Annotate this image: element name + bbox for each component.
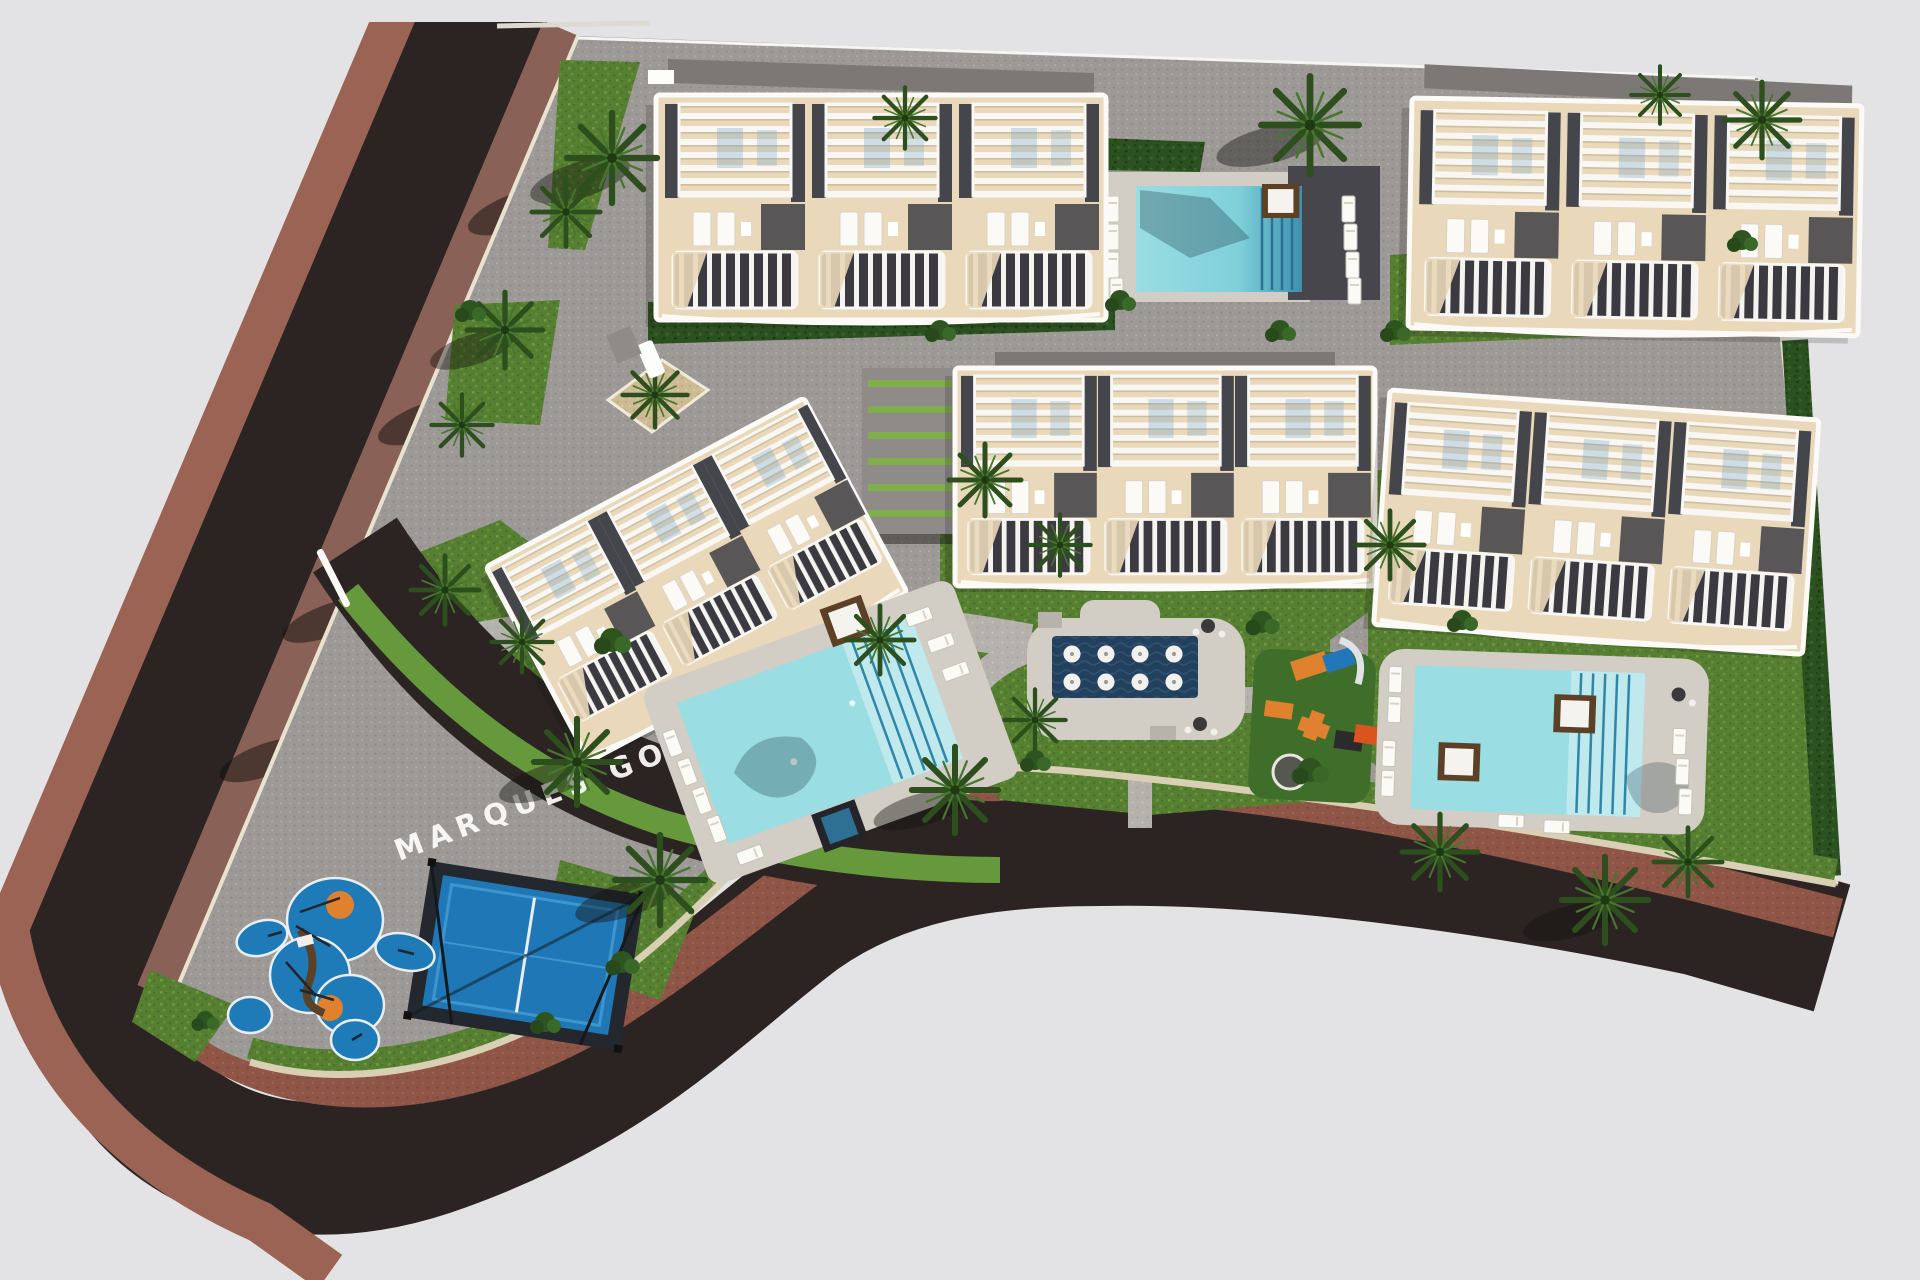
hedge-pool-north (1098, 138, 1205, 172)
road-top-cap (350, 0, 720, 22)
site-plan-canvas: MARQUES GOLF (0, 0, 1920, 1280)
daybed (1262, 184, 1299, 218)
road-end-curb (497, 23, 650, 26)
utility-box (648, 70, 674, 84)
east-pool-area (1374, 648, 1710, 838)
residential-block-1 (646, 59, 1106, 327)
residential-block-2 (1398, 64, 1863, 344)
residential-block-5 (1363, 389, 1819, 659)
residential-block-4 (945, 352, 1375, 592)
site-plan-render: MARQUES GOLF (0, 0, 1920, 1280)
north-pool-area (1098, 166, 1380, 304)
